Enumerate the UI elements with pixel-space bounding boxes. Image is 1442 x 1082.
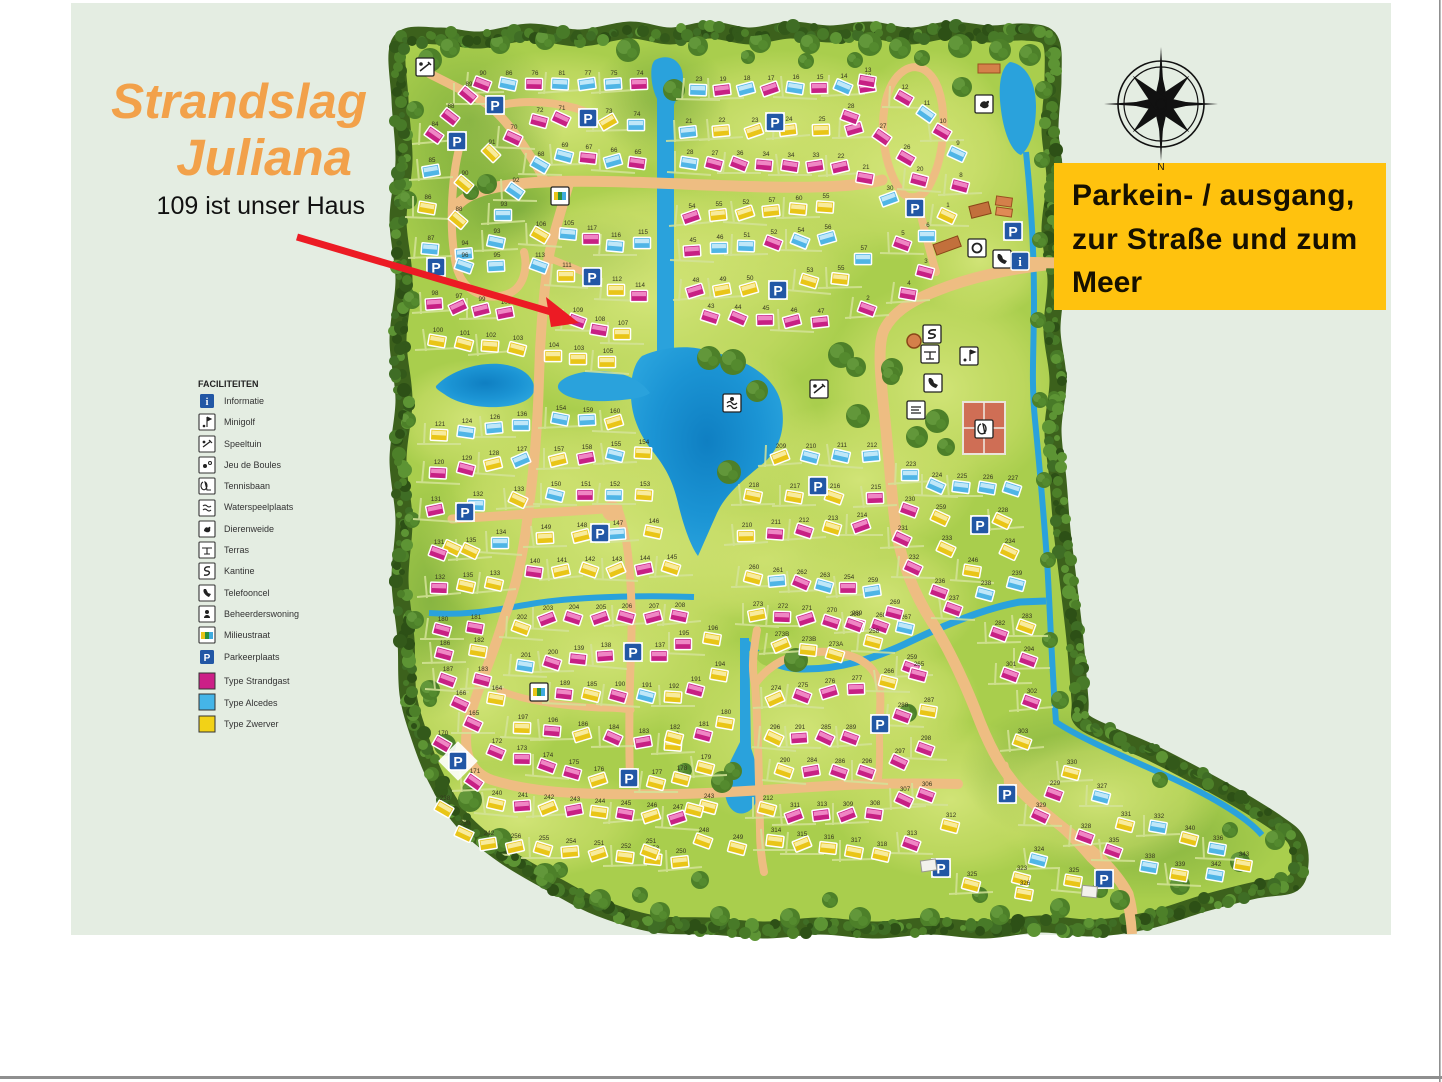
svg-text:90: 90 xyxy=(480,70,487,77)
svg-text:Type Strandgast: Type Strandgast xyxy=(224,676,290,686)
svg-text:65: 65 xyxy=(635,149,642,156)
svg-text:224: 224 xyxy=(932,472,943,479)
svg-text:239: 239 xyxy=(1012,570,1023,577)
svg-text:113: 113 xyxy=(535,252,545,259)
svg-text:288: 288 xyxy=(898,702,909,709)
svg-text:185: 185 xyxy=(587,681,598,688)
svg-text:210: 210 xyxy=(742,522,753,529)
svg-text:105: 105 xyxy=(564,220,575,227)
svg-text:132: 132 xyxy=(435,574,446,581)
svg-text:142: 142 xyxy=(585,556,596,563)
svg-text:227: 227 xyxy=(1008,475,1019,482)
svg-text:111: 111 xyxy=(562,262,572,269)
svg-text:214: 214 xyxy=(857,512,868,519)
svg-text:FACILITEITEN: FACILITEITEN xyxy=(198,379,259,389)
svg-text:189: 189 xyxy=(560,680,571,687)
svg-text:181: 181 xyxy=(699,721,710,728)
svg-text:139: 139 xyxy=(574,645,585,652)
svg-text:134: 134 xyxy=(496,529,507,536)
svg-text:P: P xyxy=(770,115,779,131)
svg-text:216: 216 xyxy=(830,483,841,490)
svg-text:88: 88 xyxy=(448,103,455,110)
svg-text:229: 229 xyxy=(1050,780,1061,787)
svg-text:Minigolf: Minigolf xyxy=(224,417,256,427)
svg-text:P: P xyxy=(628,645,637,661)
svg-text:16: 16 xyxy=(793,74,800,81)
svg-text:P: P xyxy=(583,111,592,127)
svg-text:252: 252 xyxy=(621,843,632,850)
svg-text:247: 247 xyxy=(673,804,684,811)
svg-text:107: 107 xyxy=(618,320,629,327)
svg-text:23: 23 xyxy=(752,117,759,124)
svg-text:126: 126 xyxy=(490,414,501,421)
svg-text:195: 195 xyxy=(679,630,690,637)
svg-text:183: 183 xyxy=(478,666,489,673)
svg-text:43: 43 xyxy=(708,303,715,310)
svg-text:164: 164 xyxy=(492,685,503,692)
svg-text:285: 285 xyxy=(821,724,832,731)
svg-text:232: 232 xyxy=(909,554,920,561)
svg-text:2: 2 xyxy=(866,295,870,302)
svg-text:153: 153 xyxy=(640,481,651,488)
svg-text:330: 330 xyxy=(1067,759,1078,766)
svg-text:71: 71 xyxy=(559,105,566,112)
svg-text:303: 303 xyxy=(1018,728,1029,735)
svg-text:240: 240 xyxy=(492,790,503,797)
svg-text:302: 302 xyxy=(1027,688,1038,695)
svg-text:P: P xyxy=(453,754,462,770)
svg-text:P: P xyxy=(490,98,499,114)
svg-text:55: 55 xyxy=(716,201,723,208)
svg-text:228: 228 xyxy=(998,507,1009,514)
svg-text:200: 200 xyxy=(548,649,559,656)
svg-text:154: 154 xyxy=(556,405,567,412)
svg-text:6: 6 xyxy=(926,222,930,229)
svg-text:194: 194 xyxy=(715,661,726,668)
svg-text:325: 325 xyxy=(967,871,978,878)
svg-text:74: 74 xyxy=(634,111,641,118)
svg-text:Waterspeelplaats: Waterspeelplaats xyxy=(224,502,294,512)
svg-text:329: 329 xyxy=(1036,802,1047,809)
svg-text:273B: 273B xyxy=(802,636,816,643)
svg-text:24: 24 xyxy=(786,116,793,123)
svg-text:325: 325 xyxy=(1069,867,1080,874)
svg-text:190: 190 xyxy=(615,681,626,688)
svg-text:22: 22 xyxy=(719,117,726,124)
svg-text:46: 46 xyxy=(791,307,798,314)
svg-text:28: 28 xyxy=(687,149,694,156)
svg-text:99: 99 xyxy=(479,296,486,303)
svg-text:313: 313 xyxy=(817,801,828,808)
svg-text:182: 182 xyxy=(474,637,485,644)
svg-text:338: 338 xyxy=(1145,853,1156,860)
svg-text:67: 67 xyxy=(586,144,593,151)
svg-text:34: 34 xyxy=(788,152,795,159)
svg-text:159: 159 xyxy=(583,407,594,414)
svg-text:P: P xyxy=(910,201,919,217)
svg-text:P: P xyxy=(975,518,984,534)
svg-text:241: 241 xyxy=(518,792,529,799)
svg-text:175: 175 xyxy=(569,759,580,766)
svg-text:205: 205 xyxy=(596,604,607,611)
svg-text:P: P xyxy=(1002,787,1011,803)
svg-text:243: 243 xyxy=(570,796,581,803)
svg-text:238: 238 xyxy=(981,580,992,587)
svg-text:147: 147 xyxy=(613,520,624,527)
svg-text:183: 183 xyxy=(639,728,650,735)
svg-text:N: N xyxy=(1157,162,1164,173)
svg-text:Terras: Terras xyxy=(224,545,250,555)
svg-text:106: 106 xyxy=(536,221,547,228)
svg-text:88: 88 xyxy=(456,206,463,213)
svg-text:215: 215 xyxy=(871,484,882,491)
svg-text:86: 86 xyxy=(506,70,513,77)
svg-text:192: 192 xyxy=(669,683,680,690)
svg-text:34: 34 xyxy=(763,151,770,158)
svg-text:238: 238 xyxy=(440,795,451,802)
svg-text:343: 343 xyxy=(1239,851,1250,858)
svg-text:27: 27 xyxy=(880,123,887,130)
svg-text:339: 339 xyxy=(1175,861,1186,868)
svg-text:174: 174 xyxy=(543,752,554,759)
svg-text:207: 207 xyxy=(649,603,660,610)
svg-text:138: 138 xyxy=(601,642,612,649)
svg-text:101: 101 xyxy=(460,330,471,337)
svg-text:243: 243 xyxy=(704,793,715,800)
svg-text:68: 68 xyxy=(538,151,545,158)
svg-text:133: 133 xyxy=(490,570,501,577)
svg-text:51: 51 xyxy=(744,232,751,239)
svg-text:93: 93 xyxy=(501,201,508,208)
svg-text:140: 140 xyxy=(530,558,541,565)
svg-text:Kantine: Kantine xyxy=(224,566,255,576)
svg-text:14: 14 xyxy=(841,73,848,80)
svg-text:230: 230 xyxy=(905,496,916,503)
svg-text:33: 33 xyxy=(813,152,820,159)
svg-text:Type Zwerver: Type Zwerver xyxy=(224,719,279,729)
svg-text:294: 294 xyxy=(1024,646,1035,653)
svg-text:100: 100 xyxy=(433,327,444,334)
svg-text:P: P xyxy=(624,771,633,787)
svg-text:262: 262 xyxy=(797,569,808,576)
svg-text:308: 308 xyxy=(870,800,881,807)
svg-text:52: 52 xyxy=(743,199,750,206)
svg-text:Informatie: Informatie xyxy=(224,396,264,406)
svg-text:151: 151 xyxy=(581,481,592,488)
svg-text:306: 306 xyxy=(922,781,933,788)
svg-text:236: 236 xyxy=(935,578,946,585)
svg-text:120: 120 xyxy=(434,459,445,466)
svg-text:327: 327 xyxy=(1097,783,1108,790)
svg-text:zur Straße und zum: zur Straße und zum xyxy=(1072,223,1358,256)
svg-text:324: 324 xyxy=(1034,846,1045,853)
svg-text:287: 287 xyxy=(924,697,935,704)
svg-text:160: 160 xyxy=(610,408,621,415)
svg-text:19: 19 xyxy=(720,76,727,83)
svg-text:136: 136 xyxy=(517,411,528,418)
svg-text:291: 291 xyxy=(795,724,806,731)
svg-text:21: 21 xyxy=(686,118,693,125)
svg-text:246: 246 xyxy=(647,802,658,809)
svg-text:314: 314 xyxy=(771,827,782,834)
svg-text:12: 12 xyxy=(902,84,909,91)
svg-text:186: 186 xyxy=(578,721,589,728)
svg-text:318: 318 xyxy=(877,841,888,848)
svg-text:60: 60 xyxy=(796,195,803,202)
svg-text:289: 289 xyxy=(846,724,857,731)
svg-text:203: 203 xyxy=(543,605,554,612)
svg-text:301: 301 xyxy=(1006,661,1017,668)
svg-text:23: 23 xyxy=(696,76,703,83)
svg-text:84: 84 xyxy=(432,121,439,128)
svg-text:90: 90 xyxy=(462,170,469,177)
svg-text:i: i xyxy=(206,397,209,408)
svg-text:201: 201 xyxy=(521,652,532,659)
svg-text:196: 196 xyxy=(548,717,559,724)
svg-text:Meer: Meer xyxy=(1072,266,1142,299)
svg-text:143: 143 xyxy=(612,556,623,563)
svg-text:283: 283 xyxy=(1022,613,1033,620)
svg-text:332: 332 xyxy=(1154,813,1165,820)
svg-text:258: 258 xyxy=(869,628,880,635)
svg-text:54: 54 xyxy=(689,203,696,210)
svg-text:93: 93 xyxy=(494,228,501,235)
svg-text:89: 89 xyxy=(466,81,473,88)
svg-text:211: 211 xyxy=(771,519,781,526)
svg-text:261: 261 xyxy=(773,567,784,574)
svg-text:30: 30 xyxy=(887,185,894,192)
svg-text:309: 309 xyxy=(843,801,854,808)
svg-text:146: 146 xyxy=(649,518,660,525)
svg-text:114: 114 xyxy=(635,282,645,289)
svg-text:331: 331 xyxy=(1121,811,1132,818)
svg-text:21: 21 xyxy=(863,164,870,171)
svg-text:11: 11 xyxy=(924,100,931,107)
svg-text:135: 135 xyxy=(463,572,474,579)
svg-text:55: 55 xyxy=(838,265,845,272)
svg-text:259: 259 xyxy=(868,577,879,584)
svg-text:P: P xyxy=(936,861,945,877)
svg-text:270: 270 xyxy=(827,607,838,614)
svg-text:85: 85 xyxy=(429,157,436,164)
svg-text:180: 180 xyxy=(438,616,449,623)
svg-text:18: 18 xyxy=(744,75,751,82)
svg-text:144: 144 xyxy=(640,555,651,562)
svg-text:Parkein- / ausgang,: Parkein- / ausgang, xyxy=(1072,179,1355,212)
svg-text:76: 76 xyxy=(532,70,539,77)
svg-text:275: 275 xyxy=(798,682,809,689)
svg-text:182: 182 xyxy=(670,724,681,731)
svg-text:74: 74 xyxy=(637,70,644,77)
svg-text:233: 233 xyxy=(942,535,953,542)
svg-text:49: 49 xyxy=(720,276,727,283)
svg-text:86: 86 xyxy=(425,194,432,201)
svg-text:P: P xyxy=(1099,872,1108,888)
svg-text:244: 244 xyxy=(595,798,606,805)
svg-text:1: 1 xyxy=(946,202,950,209)
svg-text:103: 103 xyxy=(513,335,524,342)
svg-text:77: 77 xyxy=(585,70,592,77)
svg-text:152: 152 xyxy=(610,481,621,488)
svg-text:P: P xyxy=(460,505,469,521)
svg-text:250: 250 xyxy=(676,848,687,855)
svg-text:127: 127 xyxy=(517,446,528,453)
svg-text:187: 187 xyxy=(443,666,454,673)
svg-text:P: P xyxy=(813,479,822,495)
svg-text:P: P xyxy=(452,134,461,150)
svg-text:P: P xyxy=(773,283,782,299)
svg-text:97: 97 xyxy=(456,293,463,300)
svg-text:184: 184 xyxy=(609,724,620,731)
svg-text:246: 246 xyxy=(968,557,979,564)
svg-text:340: 340 xyxy=(1185,825,1196,832)
svg-text:Telefooncel: Telefooncel xyxy=(224,588,270,598)
svg-text:166: 166 xyxy=(456,690,467,697)
svg-text:27: 27 xyxy=(712,150,719,157)
svg-text:154: 154 xyxy=(639,439,650,446)
svg-text:131: 131 xyxy=(431,496,442,503)
svg-text:239: 239 xyxy=(460,820,471,827)
svg-text:312: 312 xyxy=(946,812,957,819)
svg-text:265: 265 xyxy=(914,661,925,668)
svg-text:273B: 273B xyxy=(775,631,789,638)
svg-text:72: 72 xyxy=(537,107,544,114)
svg-text:116: 116 xyxy=(611,232,621,239)
svg-text:254: 254 xyxy=(566,838,577,845)
svg-text:13: 13 xyxy=(865,67,872,74)
svg-text:36: 36 xyxy=(737,150,744,157)
svg-text:26: 26 xyxy=(904,144,911,151)
svg-text:Beheerderswoning: Beheerderswoning xyxy=(224,609,299,619)
svg-text:217: 217 xyxy=(790,483,801,490)
svg-text:226: 226 xyxy=(983,474,994,481)
svg-text:Juliana: Juliana xyxy=(176,129,352,186)
svg-text:117: 117 xyxy=(587,225,597,232)
svg-text:Speeltuin: Speeltuin xyxy=(224,439,262,449)
svg-text:234: 234 xyxy=(1005,538,1016,545)
svg-text:131: 131 xyxy=(434,539,445,546)
svg-text:25: 25 xyxy=(819,116,826,123)
svg-text:48: 48 xyxy=(693,277,700,284)
svg-text:149: 149 xyxy=(541,524,552,531)
svg-text:311: 311 xyxy=(790,802,800,809)
svg-text:282: 282 xyxy=(995,620,1006,627)
svg-text:213: 213 xyxy=(828,515,839,522)
svg-text:218: 218 xyxy=(749,482,760,489)
svg-text:57: 57 xyxy=(769,197,776,204)
svg-text:165: 165 xyxy=(469,710,480,717)
svg-text:148: 148 xyxy=(577,522,588,529)
svg-text:155: 155 xyxy=(611,441,622,448)
svg-text:150: 150 xyxy=(551,481,562,488)
svg-text:P: P xyxy=(431,260,440,276)
svg-text:191: 191 xyxy=(642,682,653,689)
svg-text:202: 202 xyxy=(517,614,528,621)
svg-text:133: 133 xyxy=(514,486,525,493)
svg-text:5: 5 xyxy=(901,230,905,237)
svg-text:22: 22 xyxy=(838,153,845,160)
svg-text:259: 259 xyxy=(907,654,918,661)
svg-text:3: 3 xyxy=(924,258,928,265)
svg-text:277: 277 xyxy=(852,675,863,682)
svg-text:92: 92 xyxy=(513,177,520,184)
svg-text:81: 81 xyxy=(559,70,566,77)
svg-text:9: 9 xyxy=(956,140,960,147)
svg-text:237: 237 xyxy=(949,595,960,602)
svg-text:272: 272 xyxy=(778,603,789,610)
svg-text:223: 223 xyxy=(906,461,917,468)
svg-text:103: 103 xyxy=(574,345,585,352)
svg-text:109 ist unser Haus: 109 ist unser Haus xyxy=(157,192,365,220)
svg-text:273A: 273A xyxy=(829,641,844,648)
svg-text:254: 254 xyxy=(844,574,855,581)
svg-text:53: 53 xyxy=(807,267,814,274)
svg-text:112: 112 xyxy=(612,276,622,283)
svg-text:336: 336 xyxy=(1213,835,1224,842)
svg-text:259: 259 xyxy=(936,504,947,511)
svg-text:296: 296 xyxy=(862,758,873,765)
svg-text:45: 45 xyxy=(763,305,770,312)
svg-text:196: 196 xyxy=(708,625,719,632)
svg-text:273: 273 xyxy=(753,601,764,608)
svg-text:96: 96 xyxy=(462,252,469,259)
svg-text:Parkeerplaats: Parkeerplaats xyxy=(224,652,280,662)
svg-text:157: 157 xyxy=(554,446,565,453)
svg-text:109: 109 xyxy=(573,307,584,314)
svg-text:171: 171 xyxy=(470,768,481,775)
svg-text:210: 210 xyxy=(806,443,817,450)
svg-text:342: 342 xyxy=(1211,861,1222,868)
svg-text:45: 45 xyxy=(690,237,697,244)
svg-text:Dierenweide: Dierenweide xyxy=(224,524,274,534)
svg-text:P: P xyxy=(875,717,884,733)
svg-text:121: 121 xyxy=(435,421,446,428)
svg-text:47: 47 xyxy=(818,308,825,315)
svg-text:255: 255 xyxy=(539,835,550,842)
svg-text:10: 10 xyxy=(940,118,947,125)
svg-text:251: 251 xyxy=(646,838,657,845)
svg-text:17: 17 xyxy=(768,75,775,82)
svg-text:129: 129 xyxy=(462,455,473,462)
svg-text:28: 28 xyxy=(848,103,855,110)
svg-text:323: 323 xyxy=(1017,865,1028,872)
svg-text:335: 335 xyxy=(1109,837,1120,844)
svg-text:108: 108 xyxy=(595,316,606,323)
svg-text:8: 8 xyxy=(959,172,963,179)
svg-text:56: 56 xyxy=(825,224,832,231)
svg-text:181: 181 xyxy=(471,614,482,621)
svg-text:94: 94 xyxy=(462,240,469,247)
svg-text:206: 206 xyxy=(622,603,633,610)
svg-text:73: 73 xyxy=(606,108,613,115)
svg-text:Tennisbaan: Tennisbaan xyxy=(224,481,270,491)
svg-text:95: 95 xyxy=(494,252,501,259)
svg-text:66: 66 xyxy=(611,147,618,154)
svg-text:Type Alcedes: Type Alcedes xyxy=(224,698,278,708)
svg-text:132: 132 xyxy=(473,491,484,498)
svg-text:54: 54 xyxy=(798,227,805,234)
svg-text:268: 268 xyxy=(850,611,861,618)
svg-text:211: 211 xyxy=(837,442,847,449)
svg-text:191: 191 xyxy=(691,676,702,683)
svg-text:173: 173 xyxy=(517,745,528,752)
svg-text:128: 128 xyxy=(489,450,500,457)
svg-text:57: 57 xyxy=(861,245,868,252)
svg-text:104: 104 xyxy=(549,342,560,349)
svg-text:269: 269 xyxy=(890,599,901,606)
svg-text:212: 212 xyxy=(763,795,774,802)
svg-text:186: 186 xyxy=(440,640,451,647)
